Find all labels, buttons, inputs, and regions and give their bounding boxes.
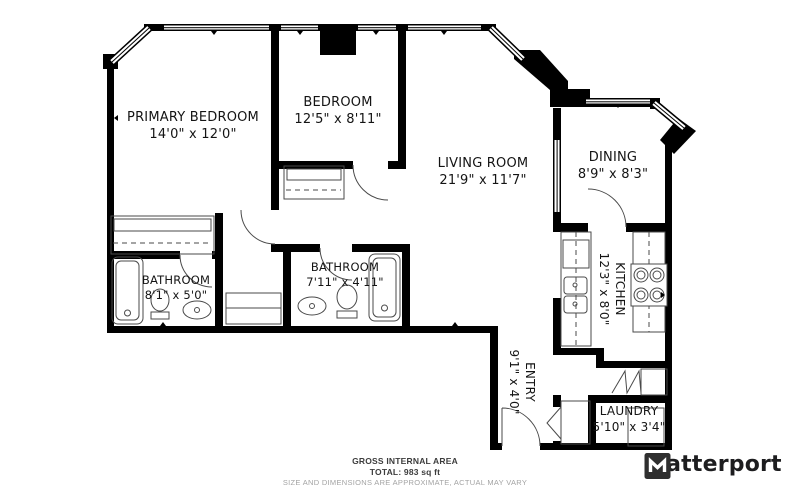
room-label-dining: DINING 8'9" x 8'3" <box>578 149 648 183</box>
laundry-bifold-door <box>612 371 641 393</box>
sink-icon <box>183 301 211 319</box>
primary-bedroom-door <box>241 210 275 244</box>
room-name: BATHROOM <box>306 260 384 275</box>
room-label-bathroom-2: BATHROOM 7'11" x 4'11" <box>306 260 384 290</box>
room-name: PRIMARY BEDROOM <box>127 109 259 126</box>
room-label-primary-bedroom: PRIMARY BEDROOM 14'0" x 12'0" <box>127 109 259 143</box>
wardrobe-primary <box>111 216 214 254</box>
window-chamfer-topleft <box>112 28 149 62</box>
linen-closet <box>226 293 281 324</box>
entry-closet <box>561 401 590 444</box>
room-label-bedroom: BEDROOM 12'5" x 8'11" <box>294 94 381 128</box>
disclaimer-text: SIZE AND DIMENSIONS ARE APPROXIMATE, ACT… <box>283 478 527 487</box>
fixtures <box>111 166 667 446</box>
sink-icon <box>298 297 326 315</box>
kitchen-closet <box>641 369 667 395</box>
room-label-living-room: LIVING ROOM 21'9" x 11'7" <box>438 155 529 189</box>
room-dims: 7'11" x 4'11" <box>306 275 384 290</box>
door-arcs <box>180 165 641 446</box>
closet-bedroom <box>284 166 344 199</box>
matterport-m-icon <box>644 452 671 482</box>
stove-icon <box>631 264 667 306</box>
footer-area-summary: GROSS INTERNAL AREA TOTAL: 983 sq ft SIZ… <box>283 456 527 488</box>
window-chamfer-topright <box>491 28 523 59</box>
room-dims: 8'9" x 8'3" <box>578 166 648 183</box>
room-dims: 14'0" x 12'0" <box>127 126 259 143</box>
bathtub-icon <box>112 257 143 324</box>
floorplan-canvas: PRIMARY BEDROOM 14'0" x 12'0" BEDROOM 12… <box>0 0 800 500</box>
window-chamfer-dining <box>654 103 684 128</box>
room-dims: 12'3" x 8'0" <box>595 253 611 326</box>
room-name: BEDROOM <box>294 94 381 111</box>
gross-internal-area-label: GROSS INTERNAL AREA <box>283 456 527 467</box>
room-name: LIVING ROOM <box>438 155 529 172</box>
room-dims: 21'9" x 11'7" <box>438 172 529 189</box>
total-area-value: TOTAL: 983 sq ft <box>283 467 527 478</box>
room-dims: 9'1" x 4'0" <box>505 349 521 414</box>
room-dims: 5'10" x 3'4" <box>593 420 666 436</box>
room-dims: 12'5" x 8'11" <box>294 111 381 128</box>
room-name: KITCHEN <box>611 253 627 326</box>
room-name: ENTRY <box>521 349 537 414</box>
room-name: BATHROOM <box>142 273 210 288</box>
floorplan-drawing <box>0 0 800 500</box>
room-label-laundry: LAUNDRY 5'10" x 3'4" <box>593 404 666 436</box>
room-dims: 8'1" x 5'0" <box>142 288 210 303</box>
room-name: DINING <box>578 149 648 166</box>
bedroom-door <box>353 165 388 200</box>
room-name: LAUNDRY <box>593 404 666 420</box>
matterport-logo: Matterport <box>644 452 782 477</box>
dining-door <box>588 189 626 227</box>
room-label-bathroom-1: BATHROOM 8'1" x 5'0" <box>142 273 210 303</box>
walls <box>103 24 696 450</box>
room-label-kitchen: KITCHEN 12'3" x 8'0" <box>595 253 627 326</box>
room-label-entry: ENTRY 9'1" x 4'0" <box>505 349 537 414</box>
entry-closet-bifold-door <box>547 407 561 439</box>
